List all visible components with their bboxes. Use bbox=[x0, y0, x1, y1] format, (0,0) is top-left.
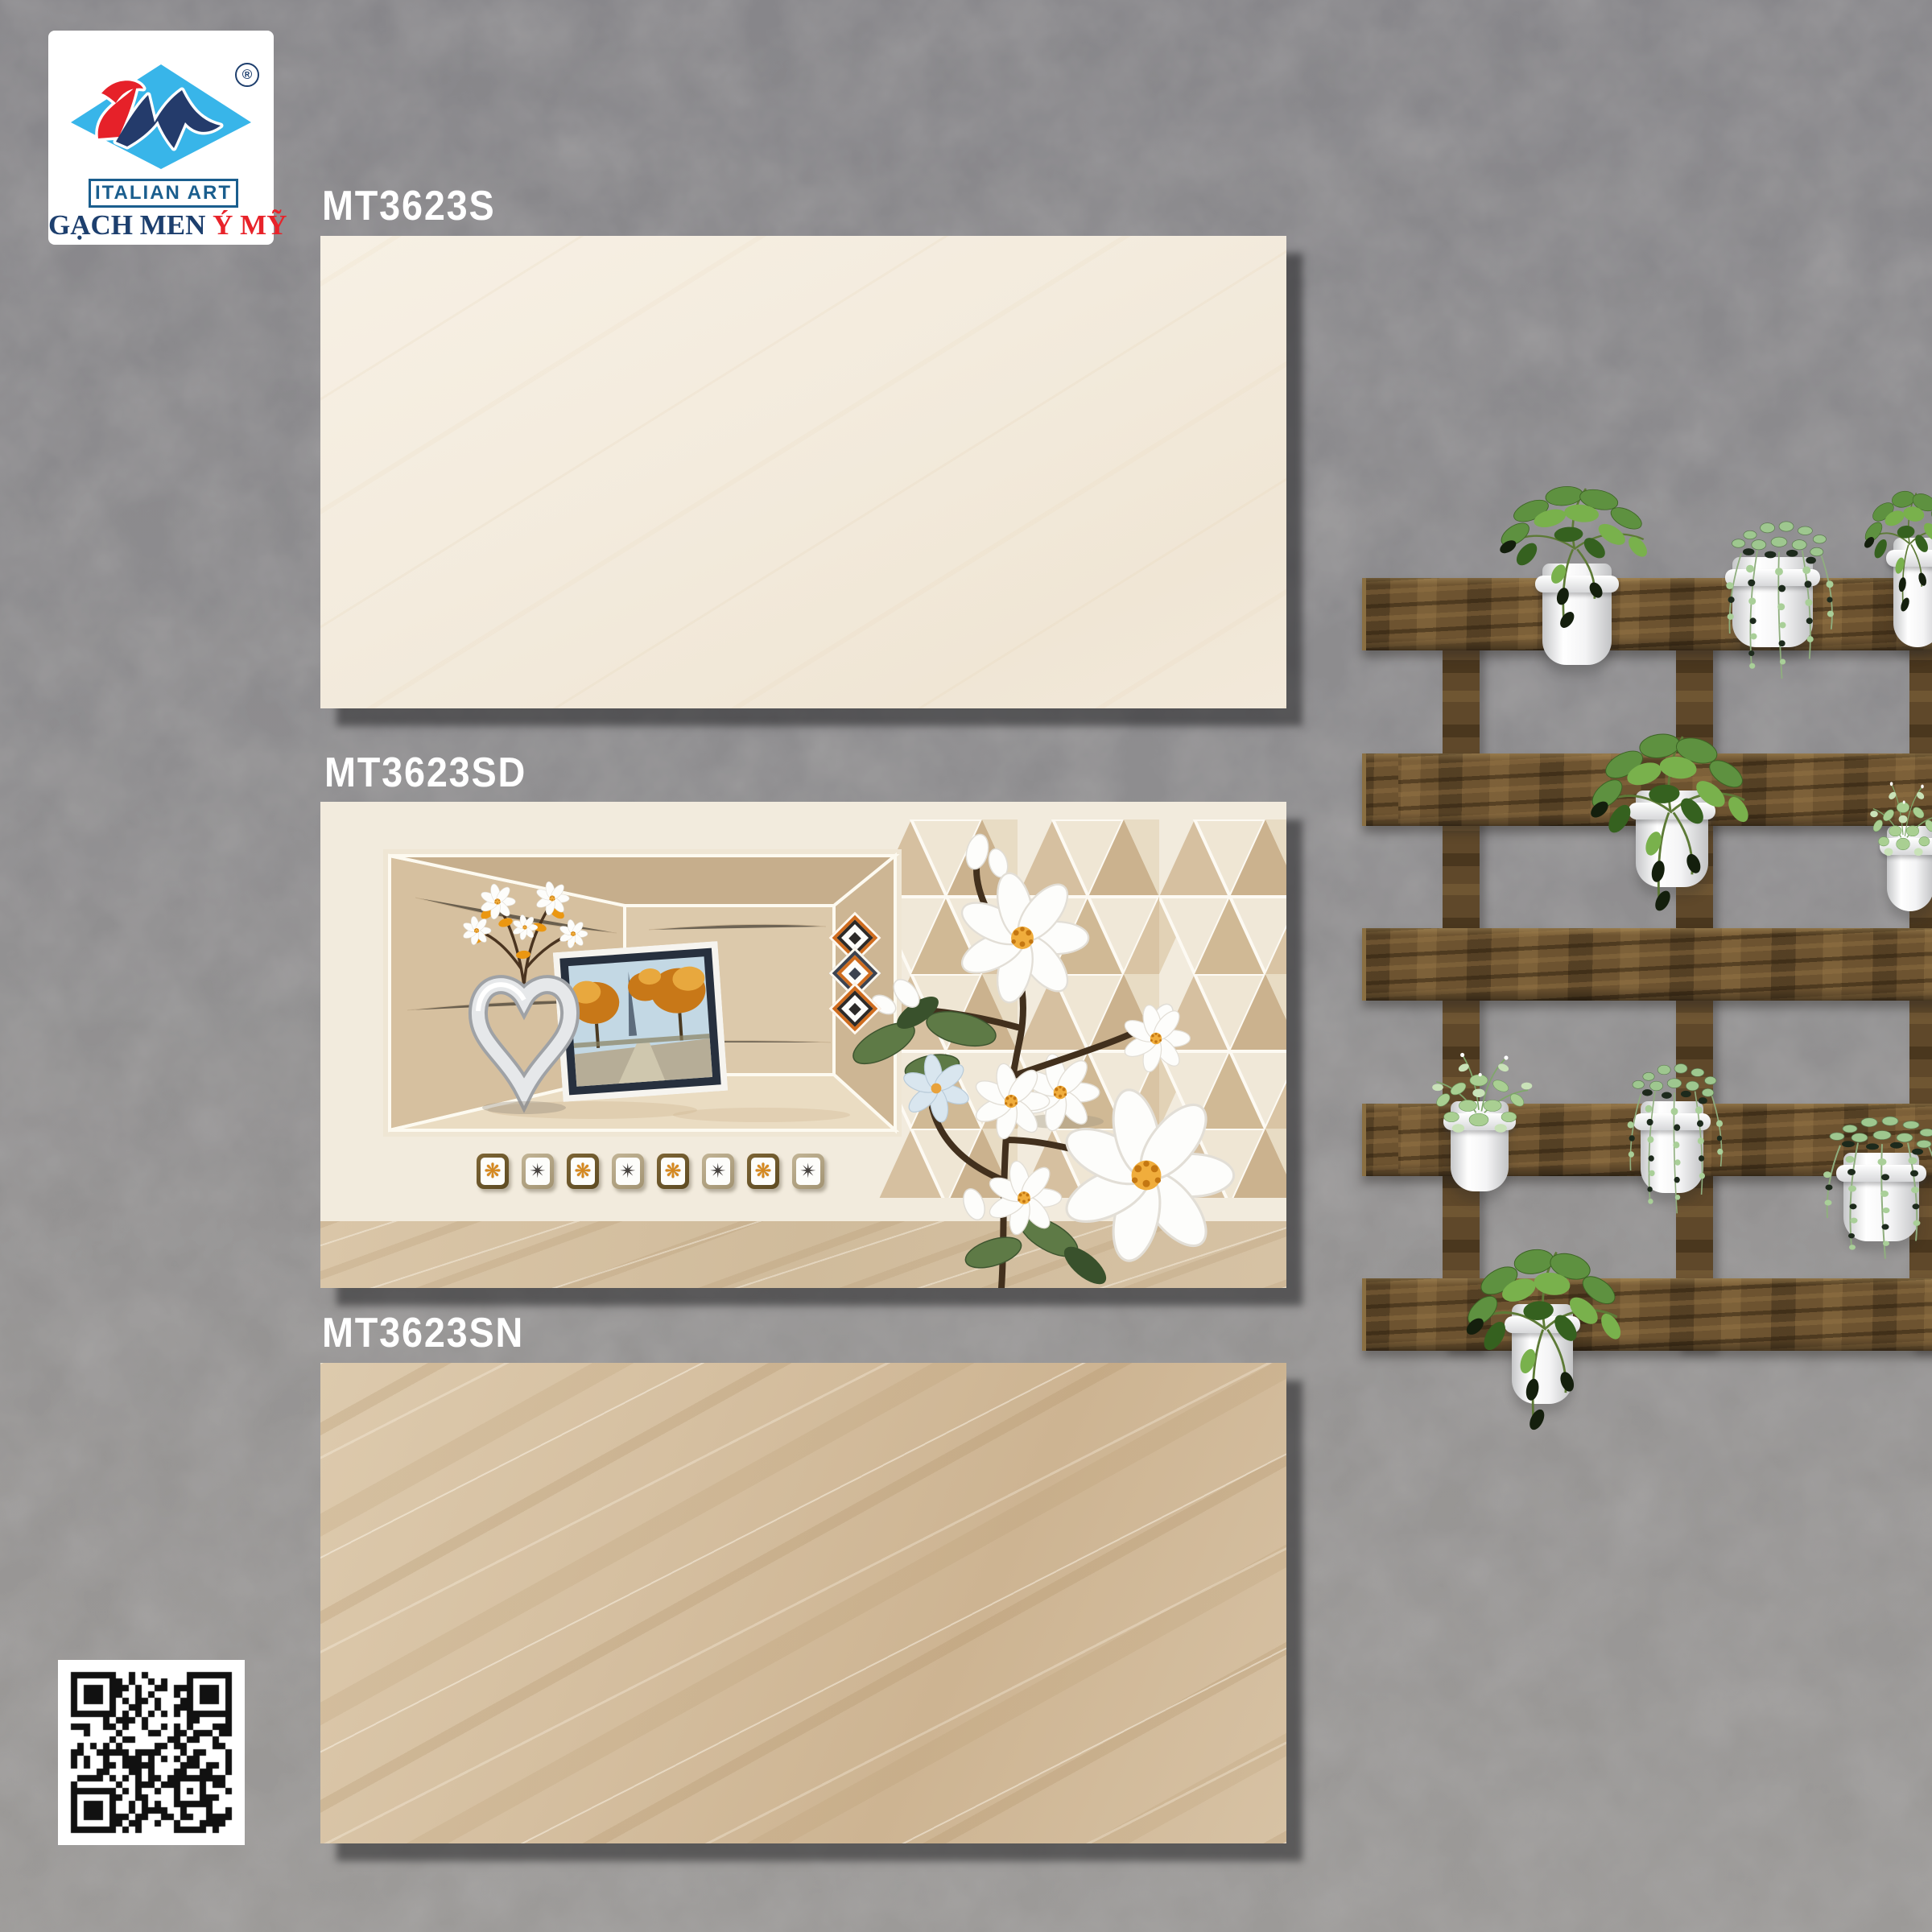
mosaic-tile-gray-star: ✴ bbox=[792, 1154, 824, 1189]
registered-trademark: ® bbox=[235, 63, 259, 87]
gray-star-icon: ✴ bbox=[706, 1158, 730, 1185]
mosaic-tile-orange-flower: ❋ bbox=[747, 1154, 779, 1189]
pallet-post bbox=[1443, 596, 1480, 1351]
mosaic-strip: ❋ ✴ ❋ ✴ ❋ ✴ ❋ ✴ bbox=[477, 1154, 855, 1191]
mosaic-tile-orange-flower: ❋ bbox=[657, 1154, 689, 1189]
product-code-label: MT3623SN bbox=[322, 1309, 524, 1357]
pallet-plank bbox=[1362, 928, 1932, 1001]
pallet-plank bbox=[1362, 1104, 1932, 1176]
orange-flower-icon: ❋ bbox=[481, 1158, 505, 1185]
brand-logo-card: ® ITALIAN ART GẠCH MEN Ý MỸ bbox=[48, 31, 274, 245]
gray-star-icon: ✴ bbox=[526, 1158, 550, 1185]
pallet-plank bbox=[1362, 753, 1932, 826]
mosaic-tile-gray-star: ✴ bbox=[612, 1154, 644, 1189]
orange-flower-icon: ❋ bbox=[571, 1158, 595, 1185]
orange-flower-icon: ❋ bbox=[751, 1158, 775, 1185]
brand-name: GẠCH MEN Ý MỸ bbox=[48, 209, 274, 242]
orange-flower-icon: ❋ bbox=[661, 1158, 685, 1185]
pallet-plank bbox=[1362, 1278, 1932, 1351]
gray-star-icon: ✴ bbox=[616, 1158, 640, 1185]
brand-prefix-text: GẠCH MEN bbox=[48, 209, 205, 241]
qr-code-pattern bbox=[64, 1666, 238, 1839]
product-code-label: MT3623S bbox=[322, 182, 496, 230]
qr-code bbox=[58, 1660, 245, 1845]
pallet-post bbox=[1676, 596, 1713, 1351]
diamond-ornaments bbox=[828, 919, 884, 1024]
gray-star-icon: ✴ bbox=[796, 1158, 820, 1185]
product-code-label: MT3623SD bbox=[324, 749, 526, 797]
tile-sample-plain bbox=[320, 236, 1286, 708]
brand-accent-text: Ý MỸ bbox=[213, 209, 287, 241]
tile-sample-dark bbox=[320, 1363, 1286, 1843]
brand-banner: ITALIAN ART bbox=[89, 179, 238, 208]
mosaic-tile-orange-flower: ❋ bbox=[567, 1154, 599, 1189]
tile-catalog-scene: ® ITALIAN ART GẠCH MEN Ý MỸ bbox=[0, 0, 1932, 1932]
pallet-post bbox=[1909, 596, 1932, 1351]
tile-sample-decor: ❋ ✴ ❋ ✴ ❋ ✴ ❋ ✴ bbox=[320, 802, 1286, 1288]
mosaic-tile-gray-star: ✴ bbox=[522, 1154, 554, 1189]
pallet-plank bbox=[1362, 578, 1932, 650]
mosaic-tile-gray-star: ✴ bbox=[702, 1154, 734, 1189]
mosaic-tile-orange-flower: ❋ bbox=[477, 1154, 509, 1189]
magnolia-branch bbox=[320, 802, 1286, 1288]
